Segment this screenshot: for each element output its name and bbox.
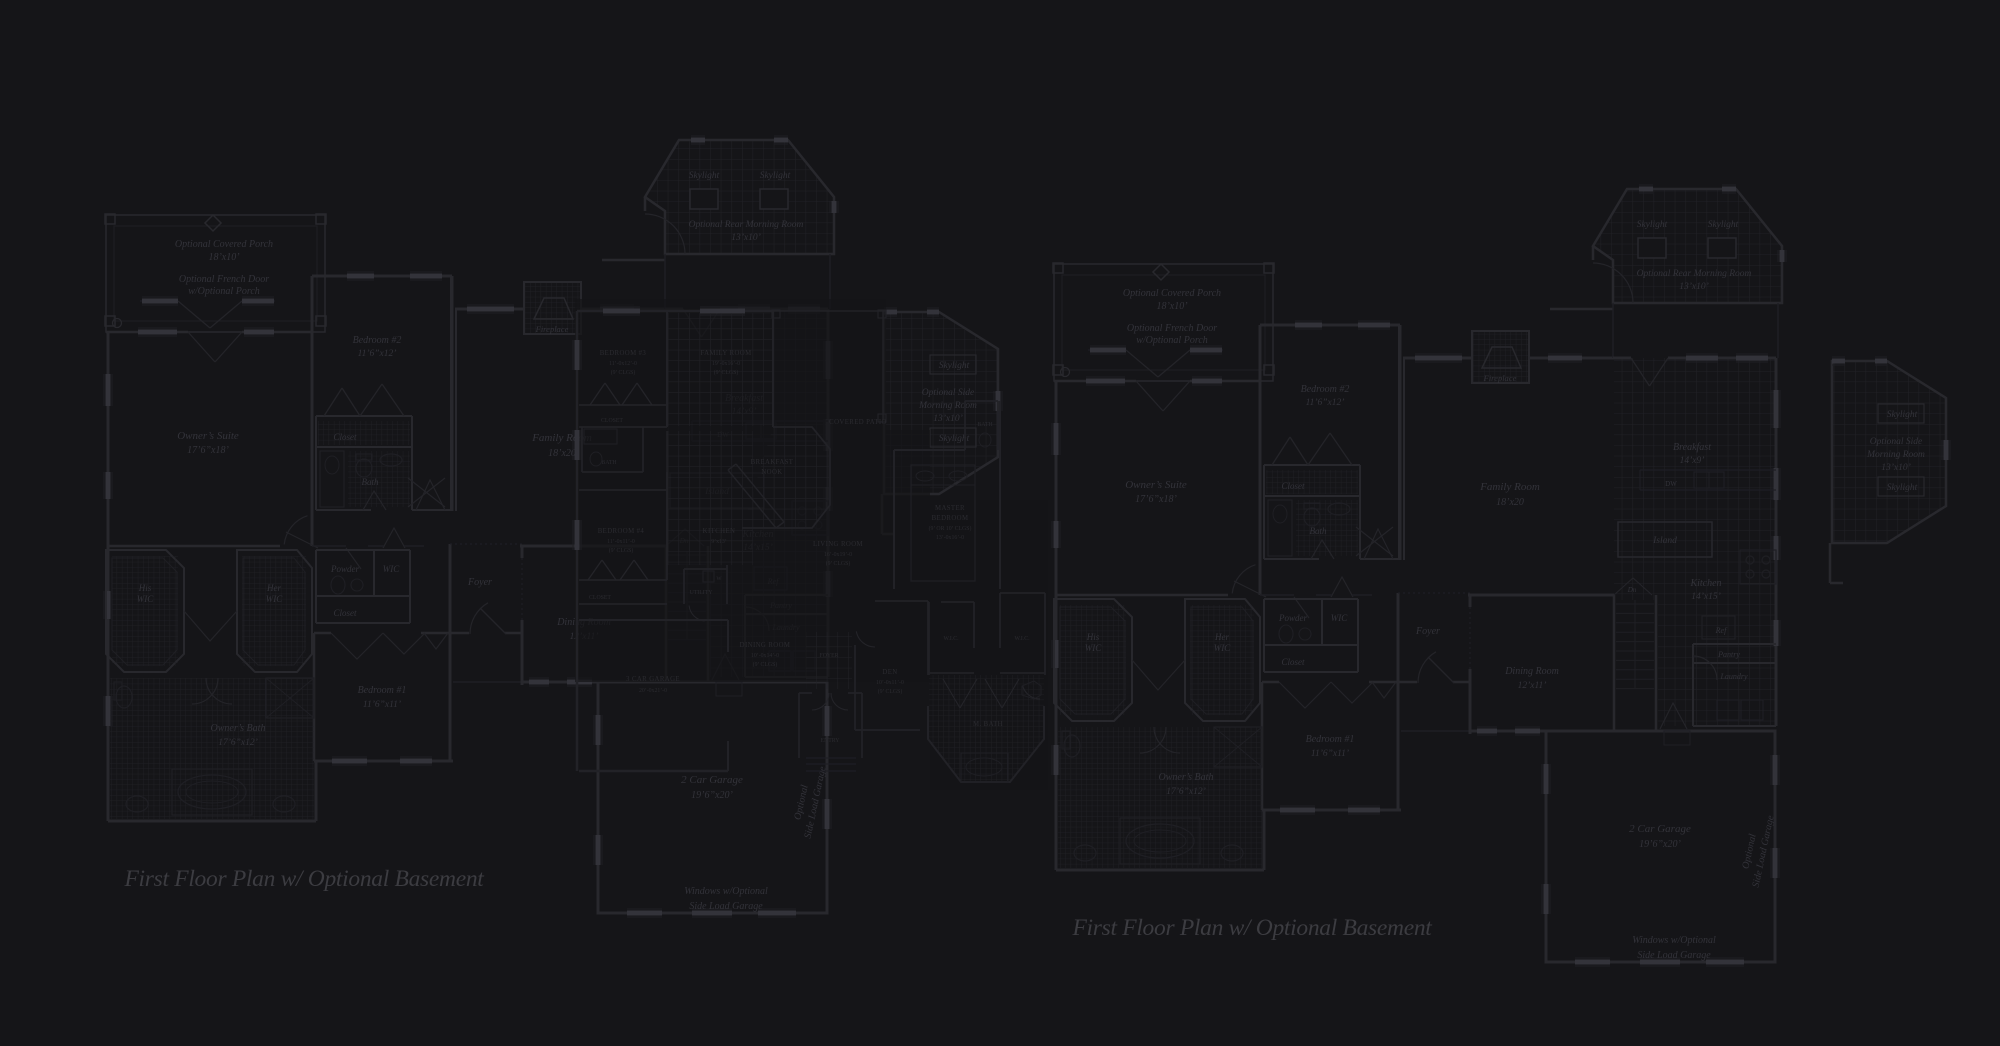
svg-text:13’x10’: 13’x10’ xyxy=(1881,463,1911,473)
svg-text:Optional Covered Porch: Optional Covered Porch xyxy=(175,239,273,250)
svg-text:Bedroom #1: Bedroom #1 xyxy=(1306,734,1355,745)
svg-text:Closet: Closet xyxy=(1281,657,1305,667)
svg-text:18’x10’: 18’x10’ xyxy=(208,252,240,263)
svg-text:BEDROOM: BEDROOM xyxy=(932,515,969,522)
svg-text:W.I.C.: W.I.C. xyxy=(943,636,959,642)
svg-text:Bedroom #2: Bedroom #2 xyxy=(353,335,402,346)
svg-text:CLOSET: CLOSET xyxy=(601,418,623,424)
svg-text:Her: Her xyxy=(1214,632,1229,642)
svg-text:13’-0x16’-0: 13’-0x16’-0 xyxy=(936,535,964,541)
svg-text:12’x11’: 12’x11’ xyxy=(1518,681,1547,691)
svg-text:w/Optional Porch: w/Optional Porch xyxy=(1136,335,1208,346)
svg-text:Optional Side: Optional Side xyxy=(922,388,975,398)
svg-text:Windows w/Optional: Windows w/Optional xyxy=(1632,935,1716,946)
svg-text:W: W xyxy=(716,576,722,582)
svg-text:11’6”x11’: 11’6”x11’ xyxy=(1311,749,1349,759)
svg-text:Kitchen: Kitchen xyxy=(1689,578,1721,589)
svg-text:Optional Side: Optional Side xyxy=(1870,437,1923,447)
svg-text:17’6”x12’: 17’6”x12’ xyxy=(1166,787,1206,797)
svg-text:Optional Covered Porch: Optional Covered Porch xyxy=(1123,288,1221,299)
svg-text:COVERED PATIO: COVERED PATIO xyxy=(829,419,887,426)
svg-text:Family Room: Family Room xyxy=(1479,481,1540,493)
svg-text:Optional French Door: Optional French Door xyxy=(179,274,269,285)
svg-text:KITCHEN: KITCHEN xyxy=(703,528,736,535)
svg-text:19’6”x20’: 19’6”x20’ xyxy=(691,790,733,801)
svg-text:Powder: Powder xyxy=(330,564,359,574)
svg-text:19’-0x16’-0: 19’-0x16’-0 xyxy=(712,361,740,367)
svg-text:WIC: WIC xyxy=(383,564,400,574)
svg-text:MASTER: MASTER xyxy=(935,505,965,512)
svg-text:Powder: Powder xyxy=(1278,613,1307,623)
svg-text:WIC: WIC xyxy=(1214,643,1231,653)
svg-text:Bedroom #1: Bedroom #1 xyxy=(358,685,407,696)
svg-text:DEN: DEN xyxy=(882,669,897,676)
svg-text:(9’ CLGS): (9’ CLGS) xyxy=(714,369,739,376)
svg-text:20’-0x21’-0: 20’-0x21’-0 xyxy=(639,688,667,694)
svg-text:BATH: BATH xyxy=(601,460,617,466)
svg-text:2 Car Garage: 2 Car Garage xyxy=(681,774,743,786)
svg-text:WIC: WIC xyxy=(1085,643,1102,653)
svg-text:(9’ CLGS): (9’ CLGS) xyxy=(609,547,634,554)
svg-text:BATH: BATH xyxy=(977,422,993,428)
svg-text:Skylight: Skylight xyxy=(760,171,791,181)
svg-text:Island: Island xyxy=(1652,536,1677,546)
svg-text:11’6”x11’: 11’6”x11’ xyxy=(363,700,401,710)
svg-text:Bedroom #2: Bedroom #2 xyxy=(1301,384,1350,395)
svg-text:WIC: WIC xyxy=(266,594,283,604)
svg-text:3 CAR GARAGE: 3 CAR GARAGE xyxy=(626,676,680,683)
svg-text:Foyer: Foyer xyxy=(1415,626,1440,637)
svg-text:NOOK: NOOK xyxy=(761,469,782,476)
svg-text:Morning Room: Morning Room xyxy=(1866,450,1925,460)
svg-text:11’6”x12’: 11’6”x12’ xyxy=(1306,398,1345,408)
svg-text:w/Optional Porch: w/Optional Porch xyxy=(188,286,260,297)
svg-text:ENTRY: ENTRY xyxy=(820,738,840,744)
svg-text:Ref: Ref xyxy=(1715,626,1728,635)
svg-text:Laundry: Laundry xyxy=(1719,672,1748,681)
svg-text:16’-0x19’-0: 16’-0x19’-0 xyxy=(824,552,852,558)
svg-text:14’x15’: 14’x15’ xyxy=(1691,592,1721,602)
svg-text:Dn: Dn xyxy=(1627,586,1637,594)
svg-text:(9’ CLGS): (9’ CLGS) xyxy=(611,369,636,376)
svg-text:11’-0x12’-0: 11’-0x12’-0 xyxy=(609,361,637,367)
svg-text:Morning Room: Morning Room xyxy=(918,401,977,411)
svg-text:Pantry: Pantry xyxy=(1717,650,1740,659)
svg-text:Owner’s Suite: Owner’s Suite xyxy=(177,430,239,442)
svg-text:Optional Rear Morning Room: Optional Rear Morning Room xyxy=(689,220,804,230)
svg-text:18’x10’: 18’x10’ xyxy=(1156,301,1188,312)
svg-text:Skylight: Skylight xyxy=(1887,483,1918,493)
svg-text:13’x10’: 13’x10’ xyxy=(1679,282,1709,292)
svg-text:11’6”x12’: 11’6”x12’ xyxy=(358,349,397,359)
svg-text:BEDROOM #3: BEDROOM #3 xyxy=(600,350,647,357)
svg-text:His: His xyxy=(138,583,152,593)
svg-text:Closet: Closet xyxy=(333,432,357,442)
svg-text:Skylight: Skylight xyxy=(939,361,970,371)
svg-text:First Floor Plan w/ Optional: First Floor Plan w/ Optional Basement xyxy=(1071,915,1432,941)
svg-text:Bath: Bath xyxy=(362,477,379,487)
svg-text:Skylight: Skylight xyxy=(689,171,720,181)
svg-text:19’6”x20’: 19’6”x20’ xyxy=(1639,839,1681,850)
svg-text:WIC: WIC xyxy=(137,594,154,604)
svg-text:UTILITY: UTILITY xyxy=(690,590,714,596)
svg-text:Side Load Garage: Side Load Garage xyxy=(689,901,763,912)
svg-text:DINING ROOM: DINING ROOM xyxy=(740,642,791,649)
svg-text:Owner’s Bath: Owner’s Bath xyxy=(1159,772,1214,783)
svg-text:Skylight: Skylight xyxy=(1637,220,1668,230)
svg-text:Her: Her xyxy=(266,583,281,593)
svg-text:(9’ CLGS): (9’ CLGS) xyxy=(878,688,903,695)
svg-text:Dining Room: Dining Room xyxy=(1504,666,1559,677)
svg-text:Skylight: Skylight xyxy=(1708,220,1739,230)
svg-text:(9’ CLGS): (9’ CLGS) xyxy=(826,560,851,567)
svg-text:FAMILY ROOM: FAMILY ROOM xyxy=(700,350,751,357)
svg-text:Owner’s Suite: Owner’s Suite xyxy=(1125,479,1187,491)
svg-text:BREAKFAST: BREAKFAST xyxy=(751,459,794,466)
svg-text:His: His xyxy=(1086,632,1100,642)
svg-text:Fireplace: Fireplace xyxy=(535,324,569,334)
svg-text:18’x20: 18’x20 xyxy=(548,448,576,459)
svg-text:18’x20: 18’x20 xyxy=(1496,497,1524,508)
svg-text:14’x9’: 14’x9’ xyxy=(1680,456,1705,466)
svg-text:FOYER: FOYER xyxy=(819,653,838,659)
svg-text:17’6”x18’: 17’6”x18’ xyxy=(187,445,229,456)
svg-text:10’-0x14’-0: 10’-0x14’-0 xyxy=(751,653,779,659)
svg-text:Side Load Garage: Side Load Garage xyxy=(1637,950,1711,961)
svg-text:First Floor Plan w/ Optional: First Floor Plan w/ Optional Basement xyxy=(123,866,484,892)
svg-text:W.I.C.: W.I.C. xyxy=(1014,636,1030,642)
svg-text:BEDROOM #4: BEDROOM #4 xyxy=(598,528,645,535)
svg-text:(9’ OR 10’ CLGS): (9’ OR 10’ CLGS) xyxy=(929,525,972,532)
svg-text:Closet: Closet xyxy=(1281,481,1305,491)
svg-text:Optional French Door: Optional French Door xyxy=(1127,323,1217,334)
svg-text:13’x10’: 13’x10’ xyxy=(933,414,963,424)
svg-text:M. BATH: M. BATH xyxy=(973,721,1003,728)
svg-text:LIVING ROOM: LIVING ROOM xyxy=(813,541,863,548)
svg-text:Owner’s Bath: Owner’s Bath xyxy=(211,723,266,734)
svg-text:10’-0x11’-0: 10’-0x11’-0 xyxy=(876,680,904,686)
svg-text:DW: DW xyxy=(1665,480,1677,488)
svg-text:Optional Rear Morning Room: Optional Rear Morning Room xyxy=(1637,269,1752,279)
svg-text:Windows w/Optional: Windows w/Optional xyxy=(684,886,768,897)
svg-text:11’-0x11’-0: 11’-0x11’-0 xyxy=(607,539,635,545)
svg-text:Skylight: Skylight xyxy=(1887,410,1918,420)
svg-text:WIC: WIC xyxy=(1331,613,1348,623)
svg-text:17’6”x18’: 17’6”x18’ xyxy=(1135,494,1177,505)
svg-text:Bath: Bath xyxy=(1310,526,1327,536)
svg-text:CLOSET: CLOSET xyxy=(589,595,611,601)
svg-text:13’x10’: 13’x10’ xyxy=(731,233,761,243)
svg-text:17’6”x12’: 17’6”x12’ xyxy=(218,738,258,748)
svg-text:Fireplace: Fireplace xyxy=(1483,373,1517,383)
svg-text:Breakfast: Breakfast xyxy=(1673,442,1711,453)
svg-text:Foyer: Foyer xyxy=(467,577,492,588)
svg-text:2 Car Garage: 2 Car Garage xyxy=(1629,823,1691,835)
svg-text:9’x13’: 9’x13’ xyxy=(711,539,727,545)
svg-text:Closet: Closet xyxy=(333,608,357,618)
svg-text:(9’ CLGS): (9’ CLGS) xyxy=(753,661,778,668)
